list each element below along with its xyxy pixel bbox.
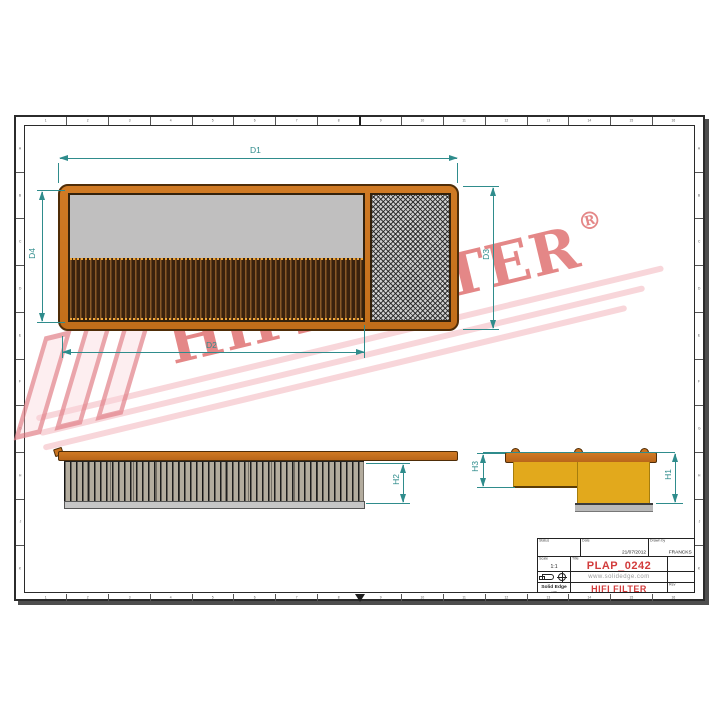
zone-cell: G <box>16 405 24 452</box>
zone-cell: 1 <box>25 594 66 601</box>
zone-cell: 16 <box>652 594 694 601</box>
title-block-url-cell: www.solidedge.com <box>571 572 668 582</box>
zone-cell: G <box>695 405 703 452</box>
zone-cell: E <box>16 312 24 359</box>
zone-cell: 4 <box>150 117 192 125</box>
front-view-pleats <box>70 258 363 320</box>
part-number: PLAP_0242 <box>571 560 667 571</box>
software-version: v20 <box>545 591 563 592</box>
zone-cell: 6 <box>233 117 275 125</box>
zone-cell: 6 <box>233 594 275 601</box>
zone-cell: A <box>16 126 24 172</box>
zone-cell: 7 <box>275 594 317 601</box>
zone-cell: 2 <box>66 594 108 601</box>
zone-band-right: ABCDEFGHJK <box>695 126 703 592</box>
arrow-icon <box>480 454 486 463</box>
dimension-line-d2 <box>63 352 365 353</box>
zone-cell: 10 <box>401 594 443 601</box>
zone-cell: H <box>16 452 24 499</box>
zone-cell: 14 <box>568 594 610 601</box>
zone-cell: E <box>695 312 703 359</box>
zone-cell: 3 <box>108 117 150 125</box>
drawn-by-label: Drawn by <box>650 539 665 543</box>
arrow-icon <box>39 313 45 322</box>
date-value: 21/07/2012 <box>622 550 646 555</box>
zone-cell: 12 <box>485 117 527 125</box>
arrow-icon <box>356 349 365 355</box>
zone-cell: 9 <box>359 594 401 601</box>
dimension-label-h2: H2 <box>392 474 401 485</box>
extension-line <box>37 322 65 323</box>
date-label: Date <box>582 539 590 543</box>
zone-cell: A <box>695 126 703 172</box>
zone-cell: C <box>16 218 24 265</box>
center-tick <box>359 116 361 125</box>
extension-line <box>366 503 410 504</box>
front-view-media-panel <box>68 193 365 322</box>
arrow-icon <box>672 453 678 462</box>
projection-symbol-icon <box>542 574 554 580</box>
title-block-drawn-cell: Drawn by FRANCKS <box>649 539 694 556</box>
arrow-icon <box>672 494 678 503</box>
rev-label: Rev <box>669 583 675 587</box>
zone-cell: H <box>695 452 703 499</box>
side-view-pleats <box>64 461 364 502</box>
zone-cell: 14 <box>568 117 610 125</box>
extension-line <box>483 452 675 453</box>
dimension-line-d1 <box>60 158 457 159</box>
zone-cell: 15 <box>610 117 652 125</box>
title-block-spare-cell <box>668 557 694 571</box>
title-block-symbols-cell <box>538 572 571 582</box>
zone-cell: 9 <box>359 117 401 125</box>
zone-cell: 8 <box>317 117 359 125</box>
front-view-mesh-screen <box>370 193 451 322</box>
scale-value: 1:1 <box>540 564 567 569</box>
zone-cell: 13 <box>527 594 569 601</box>
dimension-label-h1: H1 <box>664 469 673 480</box>
zone-cell: C <box>695 218 703 265</box>
arrow-icon <box>59 155 68 161</box>
zone-cell: J <box>695 499 703 546</box>
zone-cell: 5 <box>192 594 234 601</box>
solidedge-url: www.solidedge.com <box>571 574 667 580</box>
zone-cell: 4 <box>150 594 192 601</box>
zone-cell: F <box>695 359 703 406</box>
zone-cell: 13 <box>527 117 569 125</box>
title-block-software-cell: Solid Edge v20 <box>538 583 571 592</box>
software-name: Solid Edge <box>540 584 569 589</box>
arrow-icon <box>400 494 406 503</box>
zone-band-left: ABCDEFGHJK <box>16 126 24 592</box>
dimension-line-d4 <box>42 192 43 321</box>
company-name: HIFI FILTER <box>571 584 667 592</box>
zone-cell: 10 <box>401 117 443 125</box>
zone-cell: 11 <box>443 594 485 601</box>
dimension-label-h3: H3 <box>471 461 480 472</box>
extension-line <box>58 163 59 183</box>
extension-line <box>457 163 458 183</box>
arrow-icon <box>39 191 45 200</box>
zone-cell: K <box>695 545 703 592</box>
side-view-frame-strip <box>58 451 458 461</box>
extension-line <box>463 329 499 330</box>
dimension-label-d3: D3 <box>482 249 491 260</box>
zone-cell: 11 <box>443 117 485 125</box>
drawn-by-value: FRANCKS <box>669 550 692 555</box>
side-view-base-plate <box>64 501 365 509</box>
title-block-rev-cell: Rev <box>668 583 694 592</box>
dimension-line-d3 <box>493 188 494 328</box>
zone-cell: 3 <box>108 594 150 601</box>
status-label: Status <box>539 539 549 543</box>
zone-cell: 1 <box>25 117 66 125</box>
scale-label: Scale <box>539 557 548 561</box>
zone-cell: B <box>16 172 24 219</box>
dimension-label-d1: D1 <box>250 146 261 155</box>
center-mark-icon <box>355 594 365 602</box>
title-block-spare-cell <box>668 572 694 582</box>
end-view-shallow-body <box>513 462 577 488</box>
extension-line <box>656 503 683 504</box>
zone-cell: 5 <box>192 117 234 125</box>
arrow-icon <box>490 187 496 196</box>
title-block-date-cell: Date 21/07/2012 <box>581 539 649 556</box>
zone-cell: J <box>16 499 24 546</box>
zone-cell: K <box>16 545 24 592</box>
zone-cell: D <box>695 265 703 312</box>
extension-line <box>477 487 515 488</box>
zone-cell: B <box>695 172 703 219</box>
front-view-cover-plate <box>70 195 363 258</box>
zone-cell: F <box>16 359 24 406</box>
zone-cell: D <box>16 265 24 312</box>
zone-cell: 2 <box>66 117 108 125</box>
arrow-icon <box>480 478 486 487</box>
title-block: Status Date 21/07/2012 Drawn by FRANCKS … <box>537 538 695 593</box>
arrow-icon <box>449 155 458 161</box>
zone-cell: 16 <box>652 117 694 125</box>
zone-cell: 7 <box>275 117 317 125</box>
zone-cell: 12 <box>485 594 527 601</box>
title-block-company-cell: HIFI FILTER <box>571 583 668 592</box>
datum-target-icon <box>558 573 566 581</box>
title-block-status-cell: Status <box>538 539 581 556</box>
arrow-icon <box>490 320 496 329</box>
zone-cell: 8 <box>317 594 359 601</box>
arrow-icon <box>400 464 406 473</box>
end-view-deep-body <box>577 462 650 504</box>
dimension-label-d4: D4 <box>28 248 37 259</box>
zone-cell: 15 <box>610 594 652 601</box>
end-view-base-plate <box>575 503 653 512</box>
title-block-scale-cell: Scale 1:1 <box>538 557 571 571</box>
arrow-icon <box>62 349 71 355</box>
dimension-label-d2: D2 <box>206 341 217 350</box>
title-block-title-cell: Title PLAP_0242 <box>571 557 668 571</box>
